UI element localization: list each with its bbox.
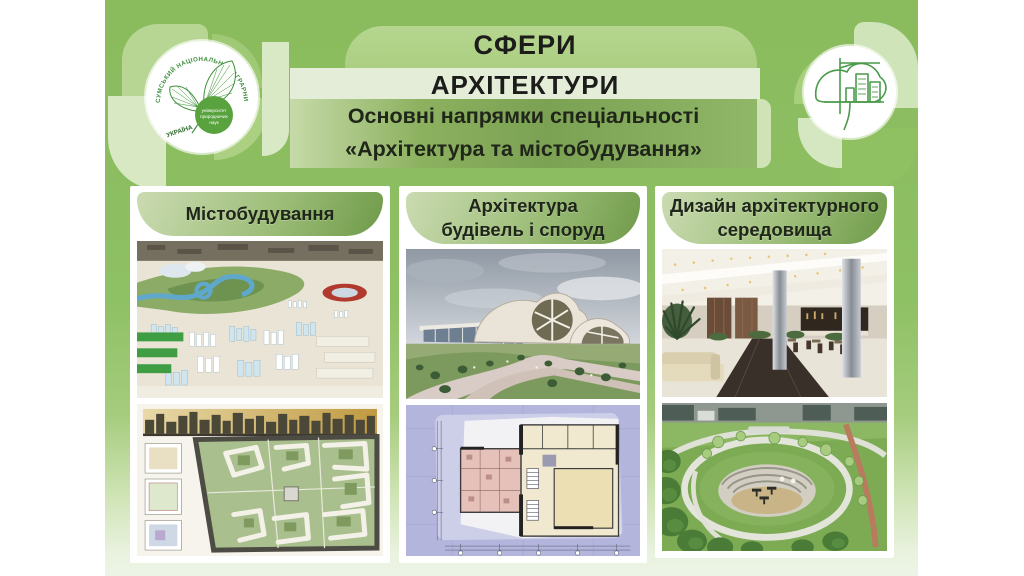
architectural-floor-plan (406, 405, 640, 556)
urban-master-plan-drawing (137, 404, 383, 556)
card-urban-planning-title: Містобудування (186, 202, 335, 226)
slide-title-line2: АРХІТЕКТУРИ (290, 70, 760, 101)
presentation-slide: АРХІТЕКТУРИ СФЕРИ Основні напрямки спеці… (0, 0, 1024, 576)
card-environment-design-header: Дизайн архітектурного середовища (662, 192, 887, 244)
card-environment-title-line1: Дизайн архітектурного (670, 194, 879, 218)
logo-inner-line3: наук (209, 120, 219, 125)
modern-building-render (406, 249, 640, 399)
green-roof-park-photo (662, 403, 887, 551)
subtitle-line2: «Архітектура та містобудування» (290, 133, 757, 166)
city-model-aerial-photo (137, 241, 383, 398)
slide-title-line1: СФЕРИ (290, 30, 760, 61)
faculty-emblem-icon (804, 46, 896, 138)
card-environment-design: Дизайн архітектурного середовища (655, 186, 894, 558)
subtitle-band-end-tab (757, 99, 771, 168)
subtitle-band: Основні напрямки спеціальності «Архітект… (290, 99, 757, 168)
card-urban-planning: Містобудування (130, 186, 390, 563)
title-light-band: АРХІТЕКТУРИ (290, 68, 760, 99)
logo-inner-line2: природничих (200, 114, 228, 119)
interior-lobby-photo (662, 249, 887, 397)
card-buildings-title-line2: будівель і споруд (441, 218, 604, 242)
card-buildings-architecture: Архітектура будівель і споруд (399, 186, 647, 563)
left-decor-tab (262, 42, 289, 156)
card-environment-title-line2: середовища (717, 218, 831, 242)
university-logo: СУМСЬКИЙ НАЦІОНАЛЬНИЙ АГРАРНИЙ УНІВЕРСИТ… (146, 41, 258, 153)
card-urban-planning-header: Містобудування (137, 192, 383, 236)
card-buildings-architecture-header: Архітектура будівель і споруд (406, 192, 640, 244)
card-buildings-title-line1: Архітектура (468, 194, 578, 218)
subtitle-line1: Основні напрямки спеціальності (290, 100, 757, 133)
university-logo-icon: СУМСЬКИЙ НАЦІОНАЛЬНИЙ АГРАРНИЙ УНІВЕРСИТ… (146, 41, 258, 153)
faculty-emblem (804, 46, 896, 138)
logo-inner-line1: університет (202, 108, 228, 113)
